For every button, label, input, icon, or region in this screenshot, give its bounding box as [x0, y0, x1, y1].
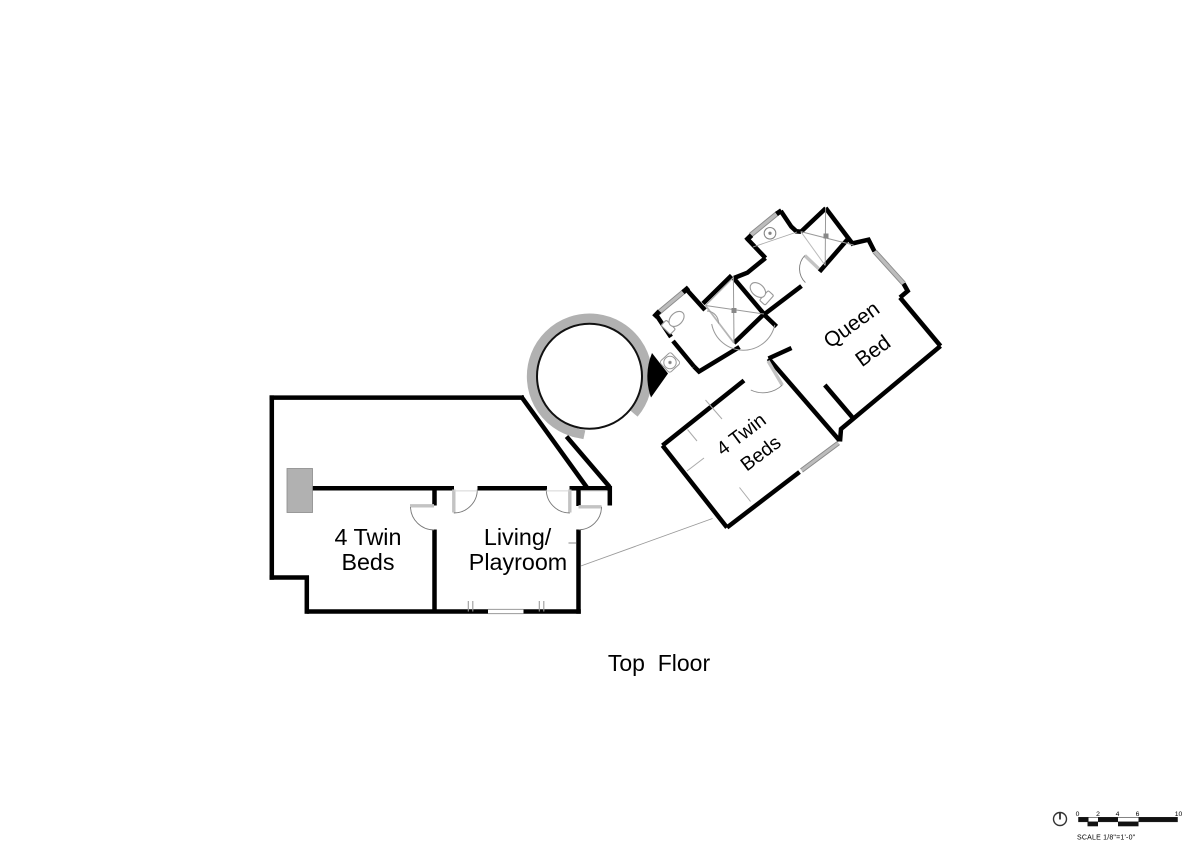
svg-text:2: 2 [1096, 811, 1100, 818]
svg-text:Beds: Beds [341, 549, 394, 575]
svg-text:Playroom: Playroom [469, 549, 567, 575]
svg-text:SCALE 1/8"=1'-0": SCALE 1/8"=1'-0" [1077, 835, 1136, 842]
svg-text:4 Twin: 4 Twin [335, 524, 402, 550]
svg-text:4: 4 [1116, 811, 1120, 818]
svg-text:Living/: Living/ [484, 524, 552, 550]
svg-text:10: 10 [1175, 811, 1183, 818]
svg-text:6: 6 [1136, 811, 1140, 818]
svg-text:Top Floor: Top Floor [608, 650, 711, 676]
svg-text:0: 0 [1076, 811, 1080, 818]
